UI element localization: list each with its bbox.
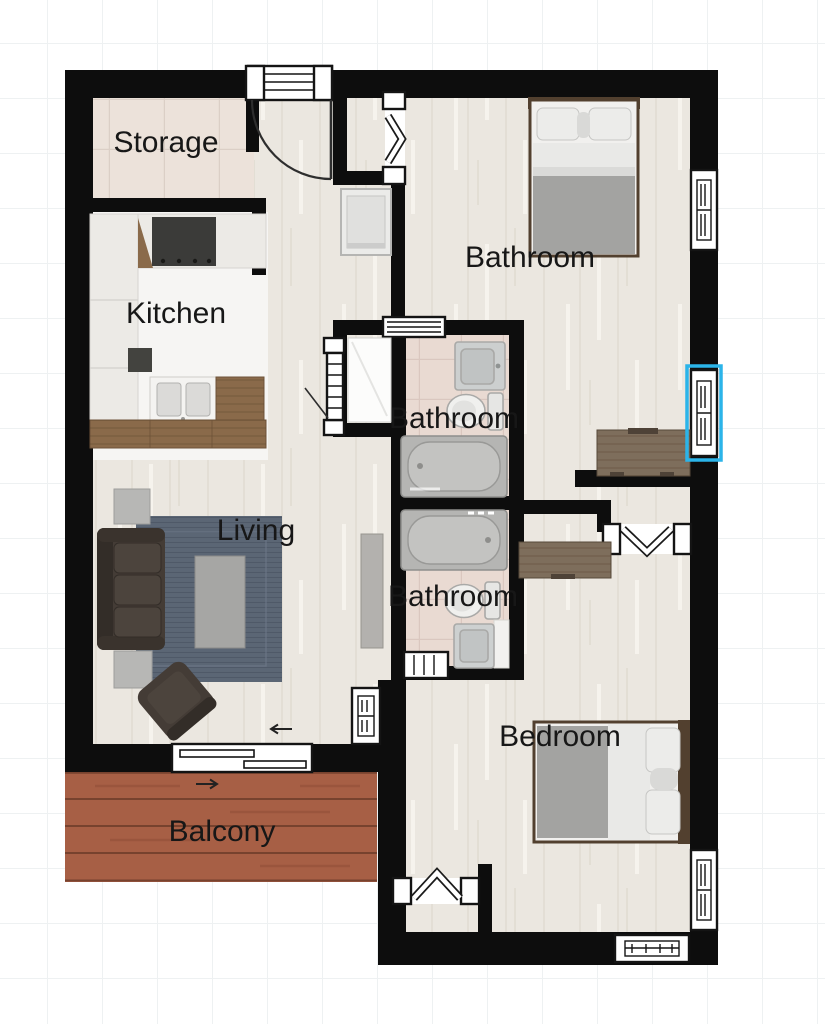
window-living-wall[interactable] xyxy=(352,688,380,744)
side-table-top[interactable] xyxy=(114,489,150,524)
wall-hall-bath[interactable] xyxy=(391,183,405,323)
sofa[interactable] xyxy=(97,528,165,650)
pillow xyxy=(537,108,579,140)
sheet-fold xyxy=(533,167,635,176)
label-bathroom-middle: Bathroom xyxy=(389,402,519,435)
pillow xyxy=(589,108,631,140)
dresser-handle xyxy=(628,428,658,434)
sofa-armrest xyxy=(97,528,165,542)
accent-pillow xyxy=(577,112,590,138)
wall-bedroom-left[interactable] xyxy=(378,680,406,965)
floor-plan-editor-canvas: Storage Kitchen Bathroom Bathroom Bathro… xyxy=(0,0,825,1024)
window-bathroom-top[interactable] xyxy=(383,317,445,337)
label-storage: Storage xyxy=(113,126,218,159)
washing-machine[interactable] xyxy=(341,189,391,255)
bathtub[interactable] xyxy=(401,436,507,497)
bathtub[interactable] xyxy=(401,510,507,570)
door-hallway[interactable] xyxy=(383,92,405,184)
floor-plan: Storage Kitchen Bathroom Bathroom Bathro… xyxy=(0,0,825,1024)
bathroom-sink[interactable] xyxy=(454,620,509,668)
seat-cushion xyxy=(114,575,161,605)
kitchen-sink[interactable] xyxy=(150,377,216,422)
counter-grain xyxy=(90,420,266,448)
pillow xyxy=(646,790,680,834)
door-bedroom[interactable] xyxy=(603,524,691,554)
window-bathroom-bottom[interactable] xyxy=(404,652,448,678)
tv-bench[interactable] xyxy=(361,534,383,648)
window-bedroom-right[interactable] xyxy=(691,850,717,930)
wall-bath-divider[interactable] xyxy=(391,496,524,510)
door-bedroom-vestibule[interactable] xyxy=(393,873,479,904)
sliding-door-balcony[interactable] xyxy=(172,744,312,772)
vanity-sink[interactable] xyxy=(455,342,505,390)
sofa-back xyxy=(97,528,113,650)
wall-corridor[interactable] xyxy=(509,500,609,514)
kitchen-appliance[interactable] xyxy=(128,348,152,372)
desk[interactable] xyxy=(519,542,611,579)
dresser[interactable] xyxy=(597,428,690,476)
label-bedroom: Bedroom xyxy=(499,720,621,753)
seat-cushion xyxy=(114,607,161,637)
label-balcony: Balcony xyxy=(169,815,276,848)
sofa-armrest xyxy=(97,636,165,650)
window-top-right[interactable] xyxy=(691,170,717,250)
wall-storage-bottom[interactable] xyxy=(65,198,266,212)
coffee-table[interactable] xyxy=(195,556,245,648)
closet-wardrobe[interactable] xyxy=(348,338,391,422)
desk-handle xyxy=(551,574,575,579)
selected-window[interactable] xyxy=(691,370,717,456)
side-table-bottom[interactable] xyxy=(114,651,152,688)
accent-pillow xyxy=(650,768,678,790)
label-bathroom-lower: Bathroom xyxy=(388,580,518,613)
counter-left xyxy=(90,214,138,448)
label-living: Living xyxy=(217,514,295,547)
window-bedroom-bottom[interactable] xyxy=(615,935,689,962)
label-bathroom-top: Bathroom xyxy=(465,241,595,274)
pillow xyxy=(646,728,680,772)
double-bed-top[interactable] xyxy=(528,97,640,256)
label-kitchen: Kitchen xyxy=(126,297,226,330)
seat-cushion xyxy=(114,543,161,573)
wall-exterior-left[interactable] xyxy=(65,70,93,772)
cooktop[interactable] xyxy=(152,217,216,266)
